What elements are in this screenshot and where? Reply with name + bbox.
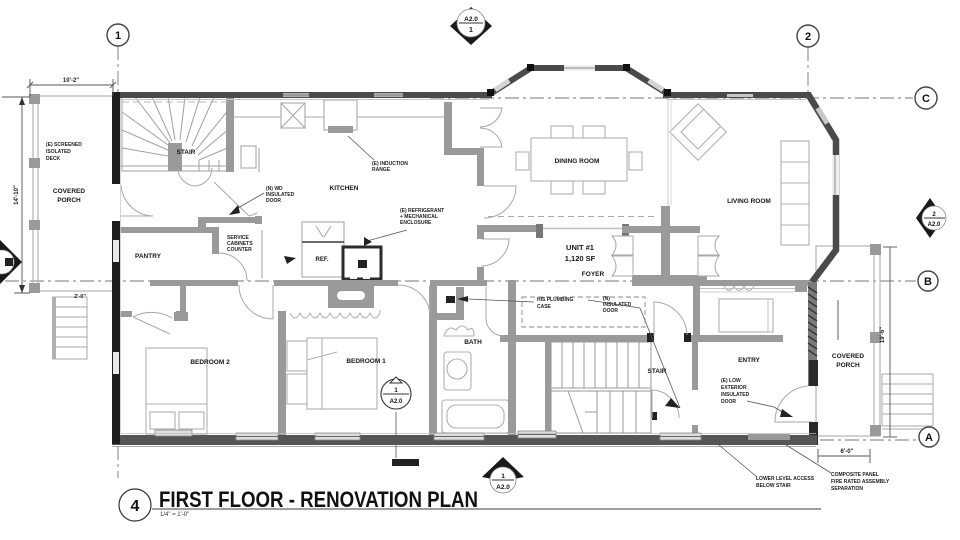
svg-text:ISOLATED: ISOLATED <box>46 149 71 155</box>
svg-text:COVERED: COVERED <box>832 353 864 360</box>
svg-text:BEDROOM 2: BEDROOM 2 <box>190 359 230 366</box>
svg-text:A2.0: A2.0 <box>464 16 478 23</box>
svg-text:14'-10": 14'-10" <box>14 185 20 205</box>
svg-text:CASE: CASE <box>537 304 552 310</box>
svg-text:4: 4 <box>131 498 140 515</box>
svg-text:C: C <box>922 93 930 105</box>
svg-text:A2.0: A2.0 <box>390 399 403 405</box>
svg-text:RANGE: RANGE <box>372 167 391 173</box>
svg-text:A2.0: A2.0 <box>928 222 941 228</box>
svg-text:DINING ROOM: DINING ROOM <box>555 158 600 165</box>
svg-text:SEPARATION: SEPARATION <box>831 486 863 492</box>
svg-text:DOOR: DOOR <box>603 308 618 314</box>
svg-text:2'-0": 2'-0" <box>74 294 86 300</box>
svg-text:19'-6": 19'-6" <box>880 327 886 343</box>
svg-text:COUNTER: COUNTER <box>227 247 252 253</box>
svg-text:KITCHEN: KITCHEN <box>330 185 359 192</box>
svg-text:BELOW STAIR: BELOW STAIR <box>756 483 791 489</box>
svg-text:REF.: REF. <box>315 257 328 263</box>
svg-text:2: 2 <box>805 31 811 43</box>
svg-text:DECK: DECK <box>46 156 61 162</box>
svg-text:UNIT #1: UNIT #1 <box>566 243 594 252</box>
svg-text:PORCH: PORCH <box>836 362 860 369</box>
svg-text:DOOR: DOOR <box>721 399 736 405</box>
svg-text:INSULATED: INSULATED <box>721 392 750 398</box>
svg-text:(E) LOW: (E) LOW <box>721 378 741 384</box>
svg-text:LIVING ROOM: LIVING ROOM <box>727 198 771 205</box>
svg-text:BEDROOM 1: BEDROOM 1 <box>346 358 386 365</box>
svg-text:STAIR: STAIR <box>647 368 666 375</box>
svg-text:1: 1 <box>501 473 505 480</box>
svg-text:STAIR: STAIR <box>176 149 195 156</box>
svg-text:B: B <box>924 276 932 288</box>
svg-text:FIRST FLOOR - RENOVATION PLAN: FIRST FLOOR - RENOVATION PLAN <box>159 487 478 512</box>
svg-text:LOWER LEVEL ACCESS: LOWER LEVEL ACCESS <box>756 476 815 482</box>
svg-text:ENCLOSURE: ENCLOSURE <box>400 220 432 226</box>
svg-text:1: 1 <box>115 30 121 42</box>
svg-text:BATH: BATH <box>464 339 482 346</box>
svg-text:FIRE RATED ASSEMBLY: FIRE RATED ASSEMBLY <box>831 479 890 485</box>
svg-text:FOYER: FOYER <box>582 271 605 278</box>
svg-text:(E) SCREENED: (E) SCREENED <box>46 142 82 148</box>
svg-text:A: A <box>925 432 933 444</box>
svg-text:COMPOSITE PANEL: COMPOSITE PANEL <box>831 472 879 478</box>
svg-text:1/4" = 1'-0": 1/4" = 1'-0" <box>160 512 189 518</box>
svg-text:PORCH: PORCH <box>57 197 81 204</box>
svg-text:6'-0": 6'-0" <box>841 449 854 455</box>
svg-text:10'-2": 10'-2" <box>63 78 79 84</box>
svg-text:A2.0: A2.0 <box>496 484 510 491</box>
svg-text:PANTRY: PANTRY <box>135 253 162 260</box>
svg-text:1: 1 <box>469 27 473 34</box>
svg-text:ENTRY: ENTRY <box>738 357 760 364</box>
svg-text:HIS PLUMBING: HIS PLUMBING <box>537 297 574 303</box>
svg-text:1,120 SF: 1,120 SF <box>565 254 596 263</box>
svg-text:COVERED: COVERED <box>53 188 85 195</box>
svg-text:EXTERIOR: EXTERIOR <box>721 385 747 391</box>
svg-text:DOOR: DOOR <box>266 198 281 204</box>
